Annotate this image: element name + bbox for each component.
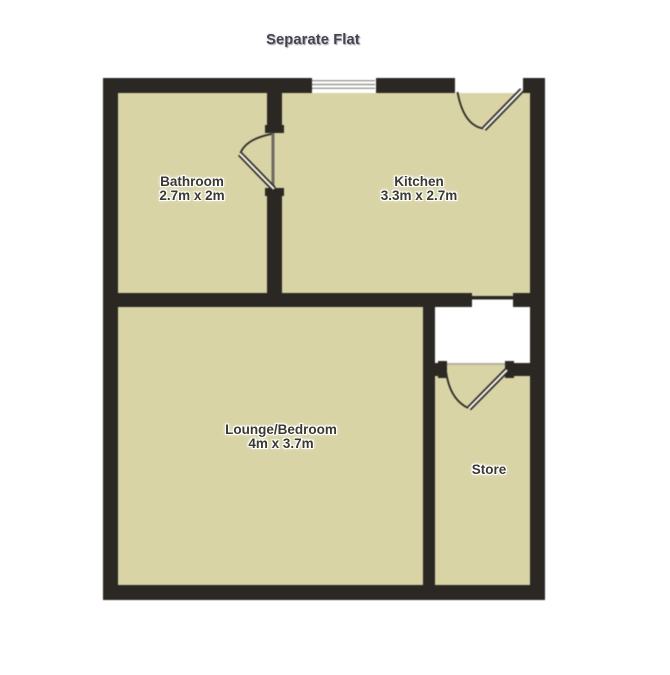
room-dimensions: 2.7m x 2m: [159, 189, 224, 203]
room-name: Store: [472, 463, 507, 477]
wall-left: [103, 78, 118, 600]
door-jamb: [265, 188, 284, 196]
window-end-cap: [306, 78, 312, 93]
room-label-lounge-bedroom: Lounge/Bedroom 4m x 3.7m: [225, 423, 337, 451]
floorplan-drawing: [0, 0, 670, 675]
room-dimensions: 4m x 3.7m: [225, 437, 337, 451]
bathroom-door-frame-line: [272, 133, 275, 188]
kitchen-door-opening: [455, 78, 523, 93]
plan-title: Separate Flat: [266, 32, 360, 48]
room-name: Lounge/Bedroom: [225, 423, 337, 437]
room-name: Bathroom: [159, 175, 224, 189]
door-jamb: [265, 125, 284, 133]
wall-bathroom-kitchen-lower: [267, 188, 282, 307]
window-recess: [472, 296, 513, 300]
wall-middle-right-stub: [513, 293, 545, 307]
room-label-bathroom: Bathroom 2.7m x 2m: [159, 175, 224, 203]
room-label-kitchen: Kitchen 3.3m x 2.7m: [381, 175, 458, 203]
window-end-cap: [376, 78, 382, 93]
room-name: Kitchen: [381, 175, 458, 189]
store-door-threshold: [445, 363, 508, 365]
room-label-store: Store: [472, 463, 507, 477]
wall-lounge-store: [423, 293, 435, 600]
wall-right: [530, 78, 545, 600]
floorplan-canvas: Separate Flat Bathroom 2.7m x 2m Kitchen…: [0, 0, 670, 675]
room-dimensions: 3.3m x 2.7m: [381, 189, 458, 203]
door-jamb: [438, 361, 447, 378]
wall-middle: [103, 293, 472, 307]
wall-bottom: [103, 585, 545, 600]
